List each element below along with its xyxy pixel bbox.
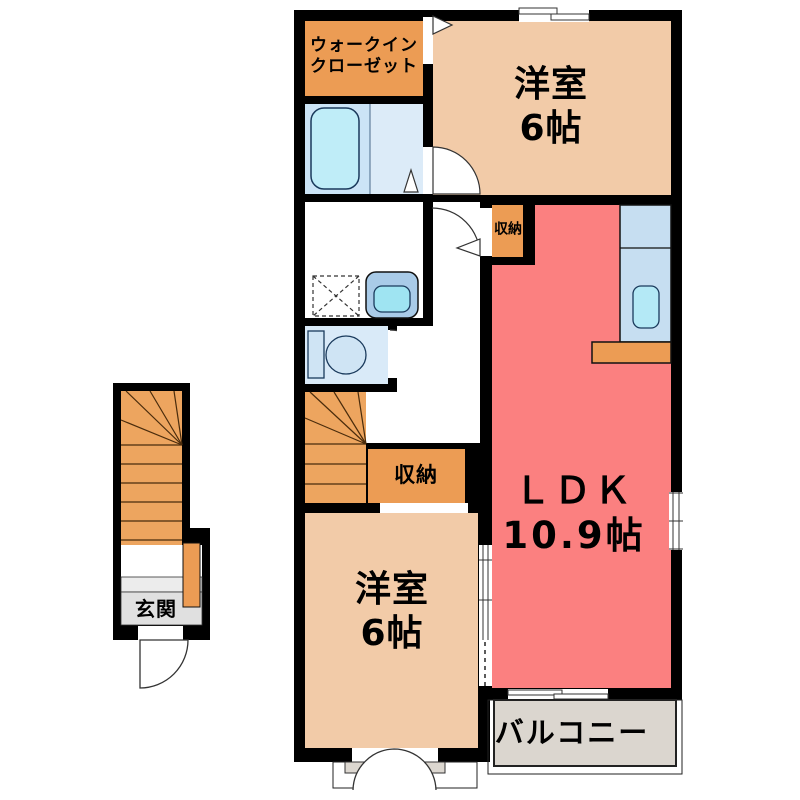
ldk-door-gap — [480, 208, 492, 256]
washroom — [305, 202, 423, 318]
window-icon — [669, 492, 683, 550]
closet-opening — [380, 503, 468, 513]
entrance-block — [113, 383, 210, 688]
floor-plan: ウォークイン クローゼット 洋室 6帖 収納 収納 ＬＤＫ 10.9帖 洋室 6… — [0, 0, 800, 800]
door-swing-icon — [140, 640, 188, 688]
bedroom-top-door-gap — [423, 147, 433, 194]
bedroom-bottom — [305, 513, 478, 748]
kitchen-sink-icon — [633, 286, 659, 328]
toilet-door-gap — [388, 330, 397, 378]
main-unit — [294, 7, 683, 790]
vanity-sink-icon — [366, 272, 418, 318]
indoor-stairs — [305, 392, 366, 503]
wic-door-gap — [423, 17, 433, 64]
bathroom — [305, 104, 423, 194]
walk-in-closet — [305, 21, 423, 96]
balcony — [488, 700, 682, 774]
sliding-door — [479, 545, 492, 686]
bathtub-icon — [311, 108, 359, 189]
shoe-cabinet-icon — [183, 543, 200, 607]
front-door-gap — [138, 626, 183, 640]
sliding-window-icon — [508, 689, 608, 700]
storage-upper — [492, 205, 523, 257]
floor-plan-drawing — [0, 0, 800, 800]
sliding-window-icon — [519, 7, 589, 22]
kitchen-counter-icon — [592, 342, 671, 363]
entrance-stairs — [121, 391, 182, 545]
